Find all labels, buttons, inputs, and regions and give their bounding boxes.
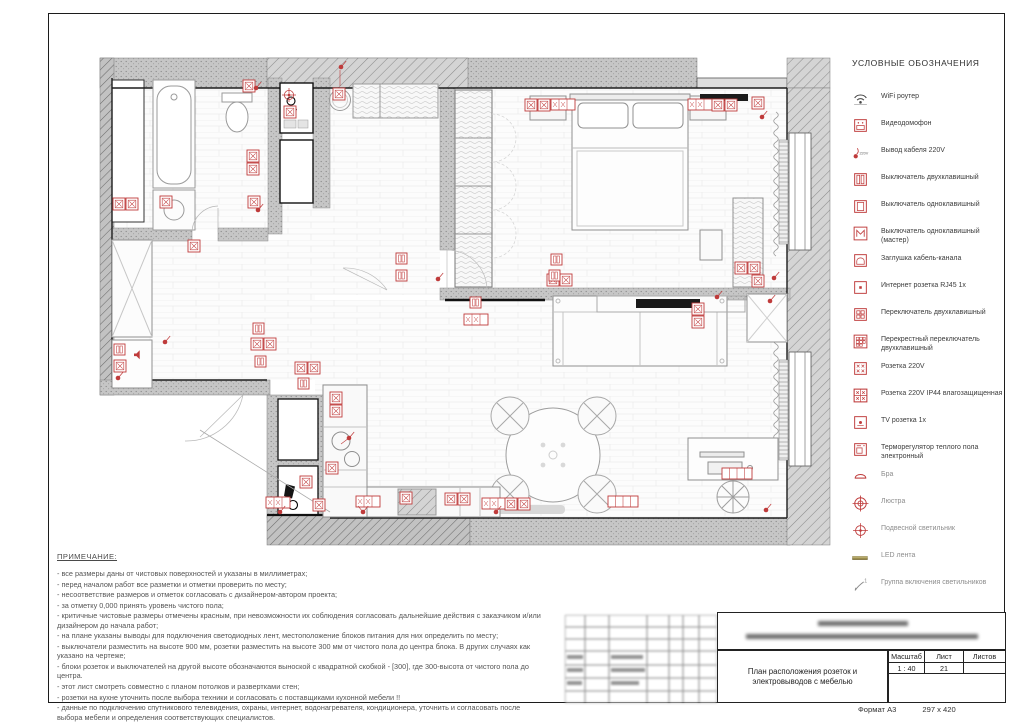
note-line: - выключатели разместить на высоте 900 м…: [57, 642, 544, 661]
tv-living: [636, 299, 700, 308]
socket-symbol: [458, 493, 470, 505]
switch-one-key-icon: [852, 198, 872, 220]
socket-220v-ip44-icon: [852, 387, 872, 409]
drawing-sheet: УСЛОВНЫЕ ОБОЗНАЧЕНИЯ WiFi роутерВидеодом…: [0, 0, 1024, 724]
cable-outlet-220v-icon: 220V: [852, 144, 872, 166]
socket-symbol: [308, 362, 320, 374]
socket-symbol: [251, 338, 263, 350]
socket-block-symbol: [356, 496, 380, 507]
socket-symbol: [247, 163, 259, 175]
legend-item: Выключатель двухклавишный: [852, 171, 1004, 193]
socket-symbol: [692, 316, 704, 328]
note-line: - несоответствие размеров и отметок согл…: [57, 590, 544, 599]
switch-two-key-icon: [852, 171, 872, 193]
title-block: План расположения розеток и электровывод…: [565, 612, 1006, 703]
note-line: - розетки на кухне уточнить после выбора…: [57, 693, 544, 702]
legend-item: TV розетка 1x: [852, 414, 1004, 436]
note-line: - этот лист смотреть совместно с планом …: [57, 682, 544, 691]
internet-socket-icon: [852, 279, 872, 301]
legend-item: LED лента: [852, 549, 1004, 571]
legend-item-label: Группа включения светильников: [881, 576, 986, 588]
legend-item-label: Розетка 220V IP44 влагозащищенная: [881, 387, 1002, 399]
toggle-two-key-icon: [852, 306, 872, 328]
socket-block-symbol: [482, 498, 506, 509]
legend-item-label: Перекрестный переключатель двухклавишный: [881, 333, 1004, 353]
socket-symbol: [560, 274, 572, 286]
socket-symbol: [333, 88, 345, 100]
socket-symbol: [284, 106, 296, 118]
socket-symbol: [692, 303, 704, 315]
legend-item: 1Группа включения светильников: [852, 576, 1004, 598]
legend-item-label: TV розетка 1x: [881, 414, 926, 426]
socket-symbol: [113, 198, 125, 210]
chandelier-icon: [852, 495, 872, 517]
switch-symbol: [114, 344, 125, 355]
bathtub: [153, 80, 195, 188]
svg-text:1: 1: [864, 578, 867, 584]
legend-item: Люстра: [852, 495, 1004, 517]
switch-symbol: [255, 356, 266, 367]
legend-item-label: LED лента: [881, 549, 915, 561]
office-chair: [717, 481, 749, 513]
thermostat-icon: [852, 441, 872, 463]
socket-symbol: [313, 499, 325, 511]
socket-symbol: [538, 99, 550, 111]
switch-one-key-master-icon: [852, 225, 872, 247]
svg-text:220V: 220V: [859, 152, 868, 156]
sconce-icon: [852, 468, 872, 490]
socket-block-symbol: [551, 99, 575, 110]
legend-item-label: Бра: [881, 468, 893, 480]
socket-symbol: [264, 338, 276, 350]
format-row: Формат А3 297 x 420: [858, 705, 1008, 714]
bench: [700, 230, 722, 260]
socket-block-symbol: [722, 468, 752, 479]
switch-symbol: [396, 270, 407, 281]
switch-symbol: [253, 323, 264, 334]
legend-item-label: Переключатель двухклавишный: [881, 306, 986, 318]
hall-wardrobe: [112, 240, 152, 337]
drawing-title: План расположения розеток и электровывод…: [717, 650, 888, 703]
socket-symbol: [248, 196, 260, 208]
legend-item: 220VВывод кабеля 220V: [852, 144, 1004, 166]
socket-220v-icon: [852, 360, 872, 382]
format-label: Формат А3: [858, 705, 896, 714]
project-header-blurred: [717, 612, 1006, 650]
socket-symbol: [400, 492, 412, 504]
legend-item: Выключатель одноклавишный: [852, 198, 1004, 220]
utility-closets: [280, 83, 313, 203]
socket-symbol: [735, 262, 747, 274]
wifi-router-icon: [852, 90, 872, 112]
socket-symbol: [160, 196, 172, 208]
legend-item: Розетка 220V: [852, 360, 1004, 382]
note-line: - критичные чистовые размеры отмечены кр…: [57, 611, 544, 630]
legend-item: Розетка 220V IP44 влагозащищенная: [852, 387, 1004, 409]
legend-item: Бра: [852, 468, 1004, 490]
note-line: - данные по подключению спутникового тел…: [57, 703, 544, 722]
socket-symbol: [247, 150, 259, 162]
socket-symbol: [295, 362, 307, 374]
legend-item-label: Выключатель одноклавишный (мастер): [881, 225, 1004, 245]
legend-item: Перекрестный переключатель двухклавишный: [852, 333, 1004, 355]
legend-item-label: Вывод кабеля 220V: [881, 144, 945, 156]
switch-symbol: [396, 253, 407, 264]
legend-item-label: Заглушка кабель-канала: [881, 252, 961, 264]
notes-title: ПРИМЕЧАНИЕ:: [57, 552, 544, 561]
socket-symbol: [330, 405, 342, 417]
note-line: - на плане указаны выводы для подключени…: [57, 631, 544, 640]
socket-symbol: [725, 99, 737, 111]
legend-item: Выключатель одноклавишный (мастер): [852, 225, 1004, 247]
legend-item: Видеодомофон: [852, 117, 1004, 139]
socket-symbol: [326, 462, 338, 474]
socket-block-symbol: [464, 314, 488, 325]
switch-symbol: [549, 270, 560, 281]
legend-item-label: Интернет розетка RJ45 1x: [881, 279, 966, 291]
note-line: - блоки розеток и выключателей на другой…: [57, 662, 544, 681]
socket-block-symbol: [608, 496, 638, 507]
note-line: - все размеры даны от чистовых поверхнос…: [57, 569, 544, 578]
switch-symbol: [298, 378, 309, 389]
socket-block-symbol: [266, 497, 290, 508]
socket-symbol: [188, 240, 200, 252]
socket-symbol: [712, 99, 724, 111]
socket-symbol: [300, 476, 312, 488]
legend-item: Заглушка кабель-канала: [852, 252, 1004, 274]
socket-symbol: [518, 498, 530, 510]
socket-block-symbol: [688, 99, 712, 110]
legend-item: Интернет розетка RJ45 1x: [852, 279, 1004, 301]
notes-block: ПРИМЕЧАНИЕ: - все размеры даны от чистов…: [57, 552, 544, 723]
wall-cabinet: [747, 294, 787, 342]
legend-item: Терморегулятор теплого пола электронный: [852, 441, 1004, 463]
cable-channel-plug-icon: [852, 252, 872, 274]
socket-symbol: [330, 392, 342, 404]
stamp-grid: Масштаб Лист Листов 1 : 40 21: [888, 650, 1006, 703]
socket-symbol: [505, 498, 517, 510]
switch-symbol: [551, 254, 562, 265]
tv-socket-icon: [852, 414, 872, 436]
legend-panel: УСЛОВНЫЕ ОБОЗНАЧЕНИЯ WiFi роутерВидеодом…: [852, 58, 1004, 603]
socket-symbol: [445, 493, 457, 505]
led-strip-icon: [852, 549, 872, 571]
legend-item: Переключатель двухклавишный: [852, 306, 1004, 328]
light-group-icon: 1: [852, 576, 872, 598]
video-intercom-icon: [852, 117, 872, 139]
legend-item-label: Подвесной светильник: [881, 522, 955, 534]
legend-item-label: Терморегулятор теплого пола электронный: [881, 441, 1004, 461]
legend-item-label: Выключатель двухклавишный: [881, 171, 979, 183]
socket-symbol: [525, 99, 537, 111]
legend-item-label: Выключатель одноклавишный: [881, 198, 980, 210]
socket-symbol: [752, 275, 764, 287]
legend-item-label: WiFi роутер: [881, 90, 919, 102]
note-line: - за отметку 0,000 принять уровень чисто…: [57, 601, 544, 610]
bathroom-sink: [153, 190, 195, 230]
bed: [570, 94, 690, 230]
legend-item-label: Видеодомофон: [881, 117, 932, 129]
legend-title: УСЛОВНЫЕ ОБОЗНАЧЕНИЯ: [852, 58, 1004, 68]
socket-symbol: [752, 97, 764, 109]
legend-item-label: Люстра: [881, 495, 905, 507]
cross-toggle-icon: [852, 333, 872, 355]
switch-symbol: [470, 297, 481, 308]
socket-symbol: [126, 198, 138, 210]
stamp-empty-cell: [888, 673, 1006, 703]
socket-symbol: [114, 360, 126, 372]
pendant-light-icon: [852, 522, 872, 544]
signature-table-blurred: [565, 615, 717, 703]
socket-symbol: [748, 262, 760, 274]
legend-item-label: Розетка 220V: [881, 360, 925, 372]
legend-item: WiFi роутер: [852, 90, 1004, 112]
format-size: 297 x 420: [922, 705, 955, 714]
socket-symbol: [243, 80, 255, 92]
legend-item: Подвесной светильник: [852, 522, 1004, 544]
note-line: - перед началом работ все разметки и отм…: [57, 580, 544, 589]
